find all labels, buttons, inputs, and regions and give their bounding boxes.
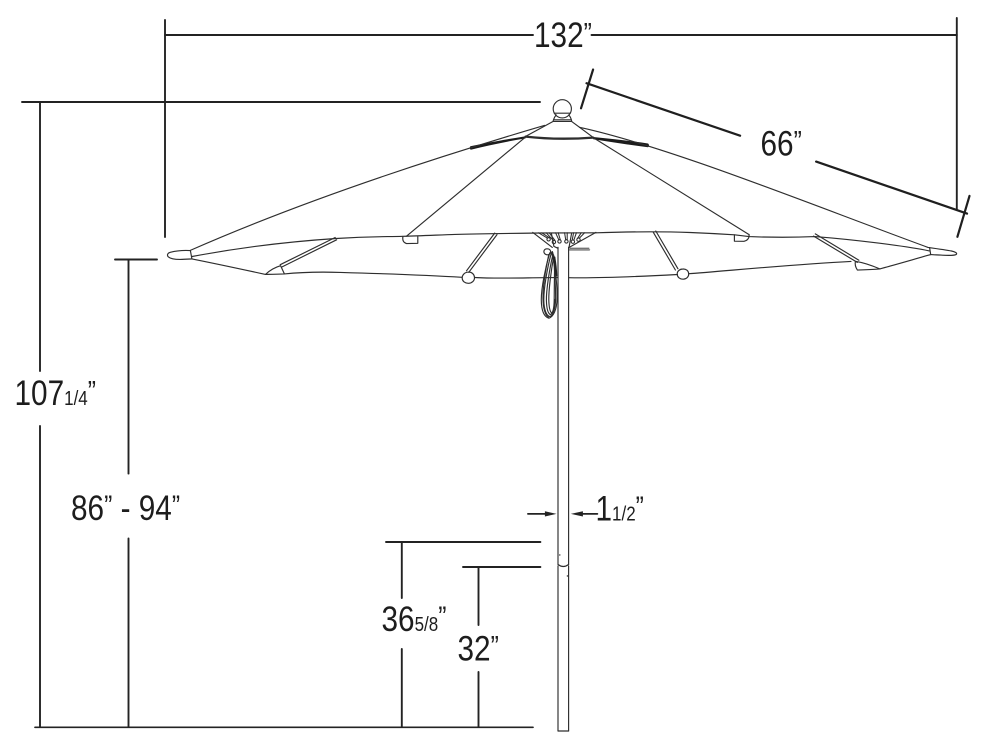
svg-text:365/8”: 365/8” bbox=[382, 600, 447, 639]
svg-text:86” - 94”: 86” - 94” bbox=[71, 489, 180, 528]
svg-text:1071/4”: 1071/4” bbox=[15, 374, 96, 413]
svg-text:11/2”: 11/2” bbox=[596, 489, 644, 528]
svg-text:32”: 32” bbox=[458, 629, 499, 668]
svg-text:132”: 132” bbox=[534, 16, 592, 55]
svg-text:66”: 66” bbox=[761, 124, 802, 163]
